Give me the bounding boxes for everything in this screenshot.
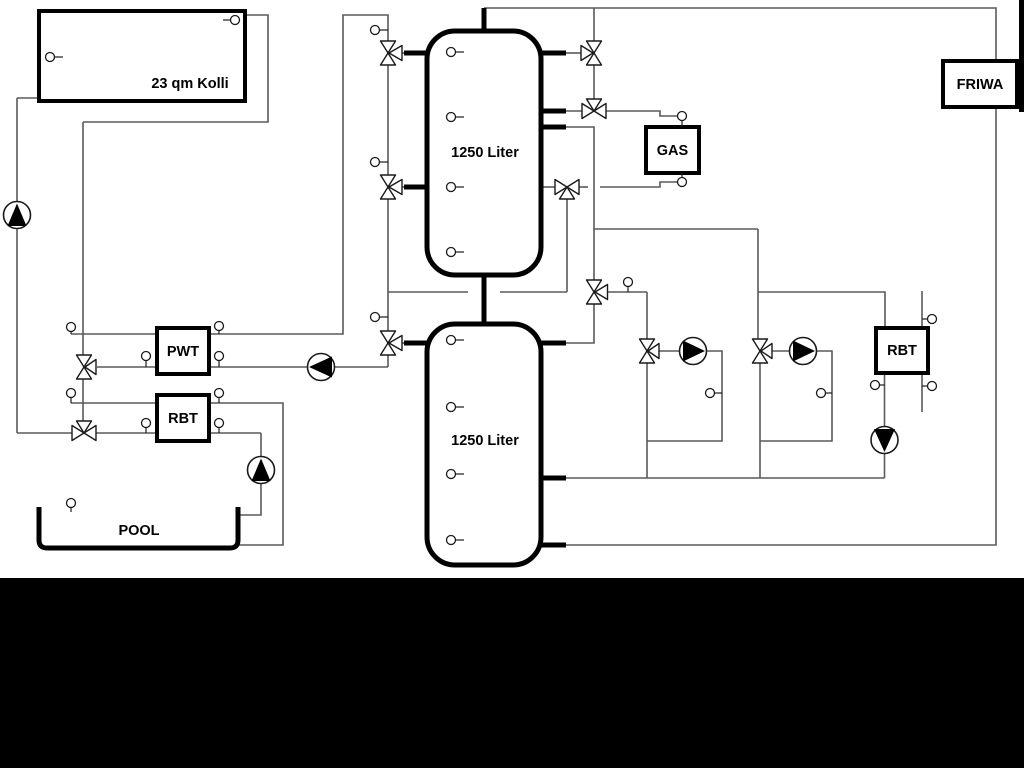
pump-heating-1-icon: [680, 338, 707, 365]
pump-rbt-right-icon: [871, 427, 898, 454]
pipe-friwa-loop: [484, 8, 996, 545]
gas-boiler-label: GAS: [657, 143, 689, 159]
sensor-rbt-top-left-icon: [67, 389, 76, 404]
rbt-left-label: RBT: [168, 411, 198, 427]
pipe-gas-return-b: [600, 182, 678, 187]
edge-bar-top-right: [1019, 0, 1024, 112]
pump-pwt-icon: [308, 354, 335, 381]
sensor-bypass-top-icon: [922, 315, 937, 324]
three-way-valve-tank-mid-left-icon: [381, 175, 403, 199]
pump-solar-icon: [4, 202, 31, 229]
sensor-rbt-bottom-left-icon: [142, 419, 151, 434]
pwt-label: PWT: [167, 344, 199, 360]
sensor-pwt-bottom-left-icon: [142, 352, 151, 368]
solar-collector-label: 23 qm Kolli: [151, 76, 228, 92]
buffer-tank-lower-label: 1250 Liter: [451, 433, 519, 449]
sensor-rbt-right-icon: [871, 381, 885, 390]
sensor-gas-flow-icon: [678, 112, 687, 128]
rbt-right-label: RBT: [887, 343, 917, 359]
sensor-bypass-bottom-icon: [922, 382, 937, 391]
sensor-distribution-branch-icon: [624, 278, 633, 293]
three-way-valve-pool-icon: [72, 421, 96, 441]
hydraulic-schematic: 23 qm Kolli 1250 Liter 1250 Liter PWT RB…: [0, 0, 1024, 768]
letterbox-bottom: [0, 578, 1024, 768]
pump-pool-icon: [248, 457, 275, 484]
sensor-loop2-icon: [817, 389, 833, 398]
friwa-label: FRIWA: [957, 77, 1004, 93]
pool-label: POOL: [118, 523, 159, 539]
schematic-page: 23 qm Kolli 1250 Liter 1250 Liter PWT RB…: [0, 0, 1024, 768]
three-way-valve-tank-top-left-icon: [381, 41, 403, 65]
pipe-to-rbt-right: [758, 292, 885, 328]
three-way-valve-gas-bottom-icon: [555, 180, 579, 200]
sensor-loop1-icon: [706, 389, 723, 398]
pipe-gas-flow: [606, 111, 678, 116]
three-way-valve-distribution-icon: [587, 280, 608, 304]
sensor-pwt-top-right-icon: [215, 322, 224, 335]
three-way-valve-gas-mid-icon: [582, 99, 606, 119]
pipe-pool-pump-out: [238, 484, 261, 516]
sensor-pwt-top-left-icon: [67, 323, 76, 335]
sensor-riser-1-icon: [371, 26, 389, 35]
sensor-riser-3-icon: [371, 313, 389, 322]
sensor-rbt-top-right-icon: [215, 389, 224, 404]
sensor-pwt-bottom-right-icon: [215, 352, 224, 368]
three-way-valve-heating-1-icon: [640, 339, 660, 363]
pipe-distribution-to-lower-tank: [566, 304, 594, 343]
sensor-gas-return-icon: [678, 173, 687, 187]
buffer-tank-upper-label: 1250 Liter: [451, 145, 519, 161]
three-way-valve-heating-2-icon: [753, 339, 773, 363]
sensor-rbt-bottom-right-icon: [215, 419, 224, 434]
three-way-valve-tank-lower-left-icon: [381, 331, 403, 355]
three-way-valve-pwt-icon: [77, 355, 97, 379]
three-way-valve-gas-top-icon: [581, 41, 602, 65]
sensor-pool-icon: [67, 499, 76, 513]
sensor-riser-2-icon: [371, 158, 389, 167]
pipe-tank-to-distribution: [566, 127, 594, 280]
pump-heating-2-icon: [790, 338, 817, 365]
